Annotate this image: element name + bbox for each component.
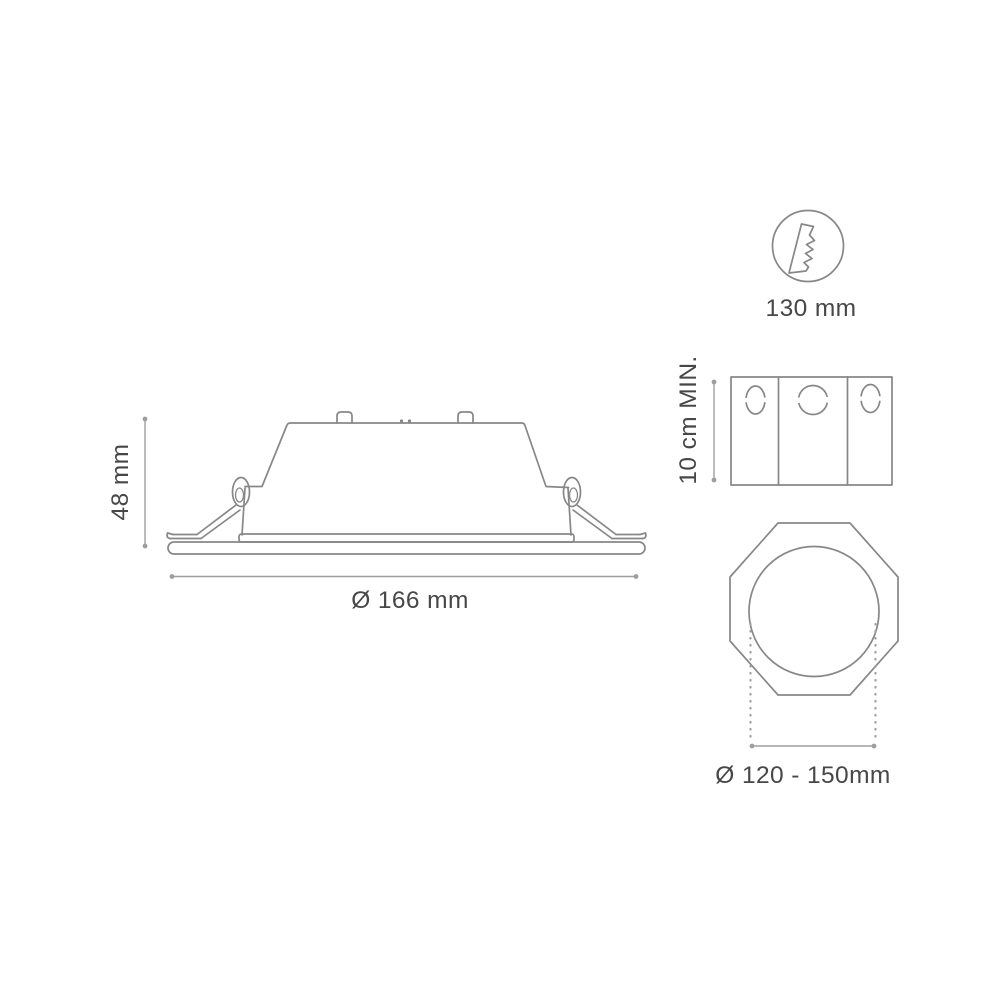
height-dimension-line xyxy=(143,417,148,549)
cutout-tool-size-label: 130 mm xyxy=(766,297,857,322)
technical-drawing-sheet: 48 mm Ø 166 mm 130 mm 10 cm MIN. Ø 120 -… xyxy=(0,0,1000,1000)
cutout-diameter-range-label: Ø 120 - 150mm xyxy=(715,764,890,789)
cutout-diameter-dimension-line xyxy=(750,744,877,749)
hole-saw-icon xyxy=(773,211,844,282)
junction-box-top-view xyxy=(712,377,892,485)
spring-clip-right xyxy=(564,478,646,539)
side-view-height-label: 48 mm xyxy=(109,444,134,521)
cutout-octagon-view xyxy=(730,523,898,748)
side-view-diameter-label: Ø 166 mm xyxy=(351,589,469,614)
drawing-geometry xyxy=(0,0,1000,1000)
downlight-side-view xyxy=(143,412,646,579)
diameter-dimension-line xyxy=(170,574,639,579)
recess-depth-label: 10 cm MIN. xyxy=(677,355,702,484)
spring-clip-left xyxy=(167,478,249,539)
recess-depth-dimension-line xyxy=(712,380,717,483)
